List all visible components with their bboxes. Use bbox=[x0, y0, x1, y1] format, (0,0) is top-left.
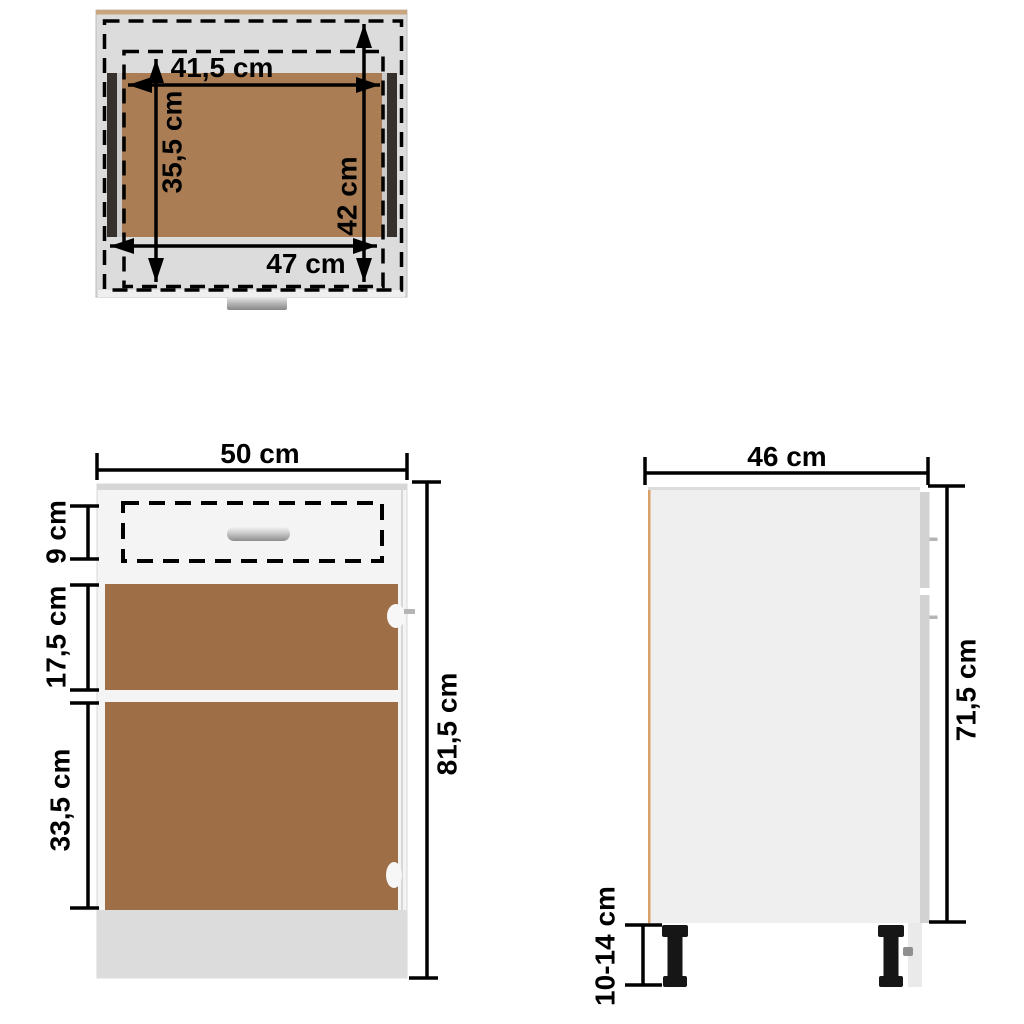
hinge-upper bbox=[387, 604, 405, 628]
drawer-handle-front-view bbox=[227, 527, 290, 541]
door-front-edge-side bbox=[920, 595, 930, 923]
drawer-handle-top-view bbox=[227, 297, 287, 310]
leg-foot bbox=[879, 976, 903, 987]
cabinet-dimension-diagram: 41,5 cm 35,5 cm 42 cm 47 cm 50 cm bbox=[0, 0, 1024, 1024]
front-view: 50 cm 9 cm 17,5 cm 33,5 cm 81 bbox=[41, 438, 463, 978]
plinth bbox=[97, 910, 407, 978]
leg-front bbox=[878, 925, 913, 987]
drawer-slide-left-rail bbox=[117, 73, 122, 237]
drawer-slide-right bbox=[387, 73, 397, 237]
dim-label-slide-length: 42 cm bbox=[332, 156, 363, 235]
drawer-pin bbox=[930, 538, 938, 542]
door-panel-lower bbox=[105, 702, 398, 910]
diagram-canvas: 41,5 cm 35,5 cm 42 cm 47 cm 50 cm bbox=[0, 0, 1024, 1024]
leg-foot bbox=[663, 976, 687, 987]
side-view: 46 cm 71,5 cm 10-14 cm bbox=[590, 441, 982, 1006]
hinge-pin-side bbox=[930, 616, 938, 620]
door-panel-upper bbox=[105, 584, 398, 690]
cabinet-top-edge bbox=[97, 484, 407, 490]
dim-label-depth: 46 cm bbox=[747, 441, 826, 472]
dim-label-inner-width: 41,5 cm bbox=[171, 52, 274, 83]
top-view-back-edge bbox=[96, 10, 407, 15]
dim-label-width: 50 cm bbox=[220, 438, 299, 469]
dim-label-drawer-height: 9 cm bbox=[41, 500, 72, 564]
leg-flange bbox=[662, 925, 688, 937]
dim-label-outer-width: 47 cm bbox=[266, 248, 345, 279]
leg-back bbox=[662, 925, 688, 987]
dim-label-lower-panel: 33,5 cm bbox=[45, 749, 76, 852]
drawer-slide-left bbox=[107, 73, 117, 237]
top-view: 41,5 cm 35,5 cm 42 cm 47 cm bbox=[96, 10, 407, 310]
side-top-edge bbox=[648, 487, 920, 490]
dim-label-total-height: 81,5 cm bbox=[432, 673, 463, 776]
hinge-upper-pin bbox=[404, 609, 415, 614]
back-edge-line bbox=[648, 487, 651, 923]
cabinet-side-panel bbox=[648, 487, 920, 923]
drawer-front-edge-side bbox=[920, 492, 930, 588]
hinge-lower bbox=[386, 862, 402, 888]
leg-stem bbox=[668, 936, 683, 978]
leg-adjuster-screw bbox=[903, 947, 913, 956]
leg-stem bbox=[884, 936, 899, 978]
dim-label-body-height: 71,5 cm bbox=[951, 639, 982, 742]
dim-label-upper-panel: 17,5 cm bbox=[41, 586, 72, 689]
leg-flange bbox=[878, 925, 904, 937]
dim-label-inner-depth: 35,5 cm bbox=[157, 91, 188, 194]
dim-label-leg-height: 10-14 cm bbox=[590, 886, 621, 1006]
